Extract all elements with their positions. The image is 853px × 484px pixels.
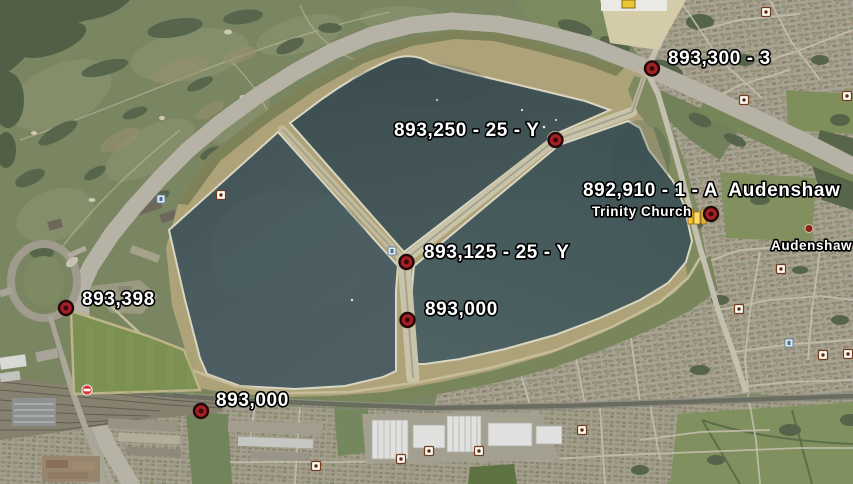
- svg-text:892,910 - 1 - A Audenshaw: 892,910 - 1 - A Audenshaw: [583, 180, 840, 201]
- svg-text:Audenshaw: Audenshaw: [771, 238, 852, 253]
- svg-text:893,300 - 3: 893,300 - 3: [668, 48, 771, 69]
- svg-text:893,000: 893,000: [425, 299, 498, 320]
- svg-text:893,125 - 25 - Y: 893,125 - 25 - Y: [424, 242, 570, 263]
- svg-text:893,398: 893,398: [82, 289, 155, 310]
- svg-text:Trinity Church: Trinity Church: [592, 204, 692, 219]
- svg-text:893,000: 893,000: [216, 390, 289, 411]
- svg-text:893,250 - 25 - Y: 893,250 - 25 - Y: [394, 120, 540, 141]
